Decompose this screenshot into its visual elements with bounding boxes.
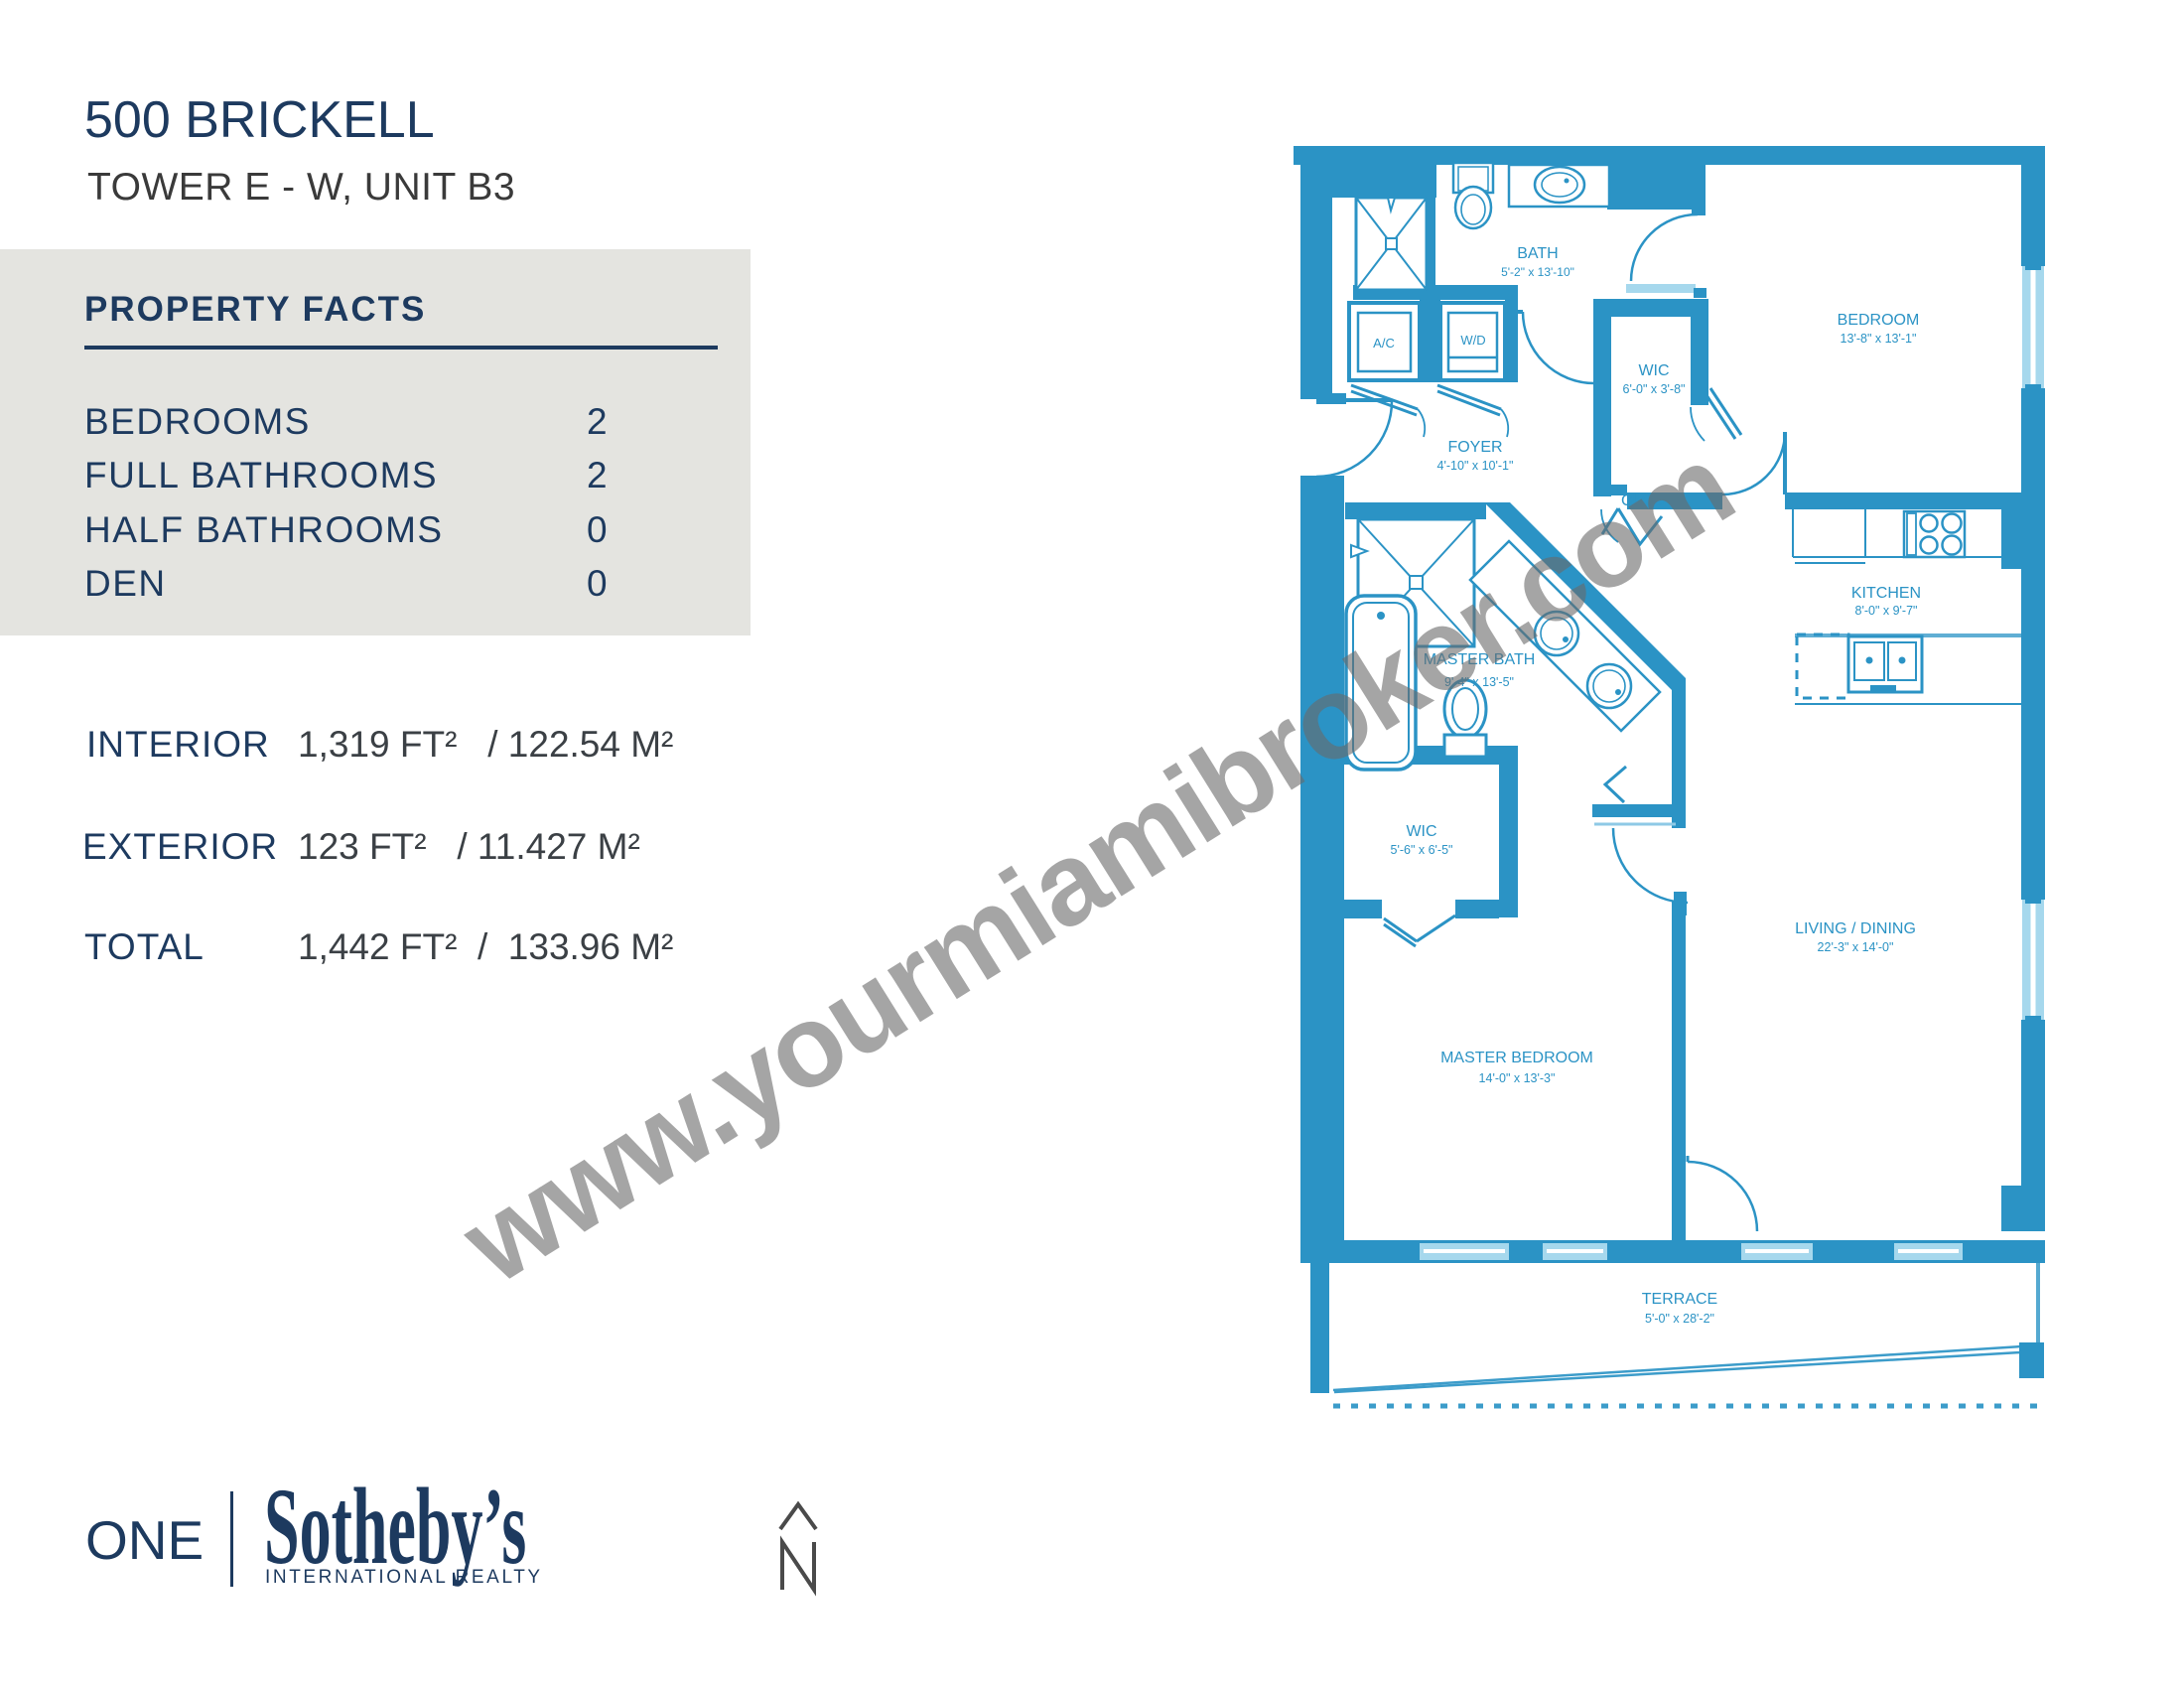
svg-text:KITCHEN: KITCHEN <box>1851 585 1921 602</box>
svg-text:FOYER: FOYER <box>1447 439 1502 456</box>
svg-text:www.yourmiamibroker.com: www.yourmiamibroker.com <box>440 420 1753 1309</box>
svg-text:MASTER BEDROOM: MASTER BEDROOM <box>1440 1050 1593 1066</box>
svg-text:LIVING / DINING: LIVING / DINING <box>1795 920 1916 937</box>
svg-text:5'-0" x 28'-2": 5'-0" x 28'-2" <box>1645 1312 1714 1326</box>
svg-text:WIC: WIC <box>1406 823 1436 840</box>
svg-text:WIC: WIC <box>1638 362 1669 379</box>
svg-text:A/C: A/C <box>1373 336 1395 351</box>
svg-text:TERRACE: TERRACE <box>1642 1291 1717 1308</box>
svg-text:22'-3" x 14'-0": 22'-3" x 14'-0" <box>1818 940 1894 954</box>
svg-text:BATH: BATH <box>1517 245 1558 262</box>
svg-text:14'-0" x 13'-3": 14'-0" x 13'-3" <box>1479 1071 1556 1085</box>
svg-text:4'-10" x 10'-1": 4'-10" x 10'-1" <box>1437 459 1514 473</box>
svg-text:6'-0" x 3'-8": 6'-0" x 3'-8" <box>1623 382 1686 396</box>
svg-text:8'-0" x 9'-7": 8'-0" x 9'-7" <box>1855 604 1918 618</box>
svg-text:5'-6" x 6'-5": 5'-6" x 6'-5" <box>1391 843 1453 857</box>
svg-text:13'-8" x 13'-1": 13'-8" x 13'-1" <box>1841 332 1917 346</box>
svg-text:W/D: W/D <box>1460 333 1485 348</box>
svg-text:BEDROOM: BEDROOM <box>1838 312 1920 329</box>
svg-text:5'-2" x 13'-10": 5'-2" x 13'-10" <box>1501 265 1574 279</box>
svg-text:Sotheby’s: Sotheby’s <box>264 1467 526 1587</box>
